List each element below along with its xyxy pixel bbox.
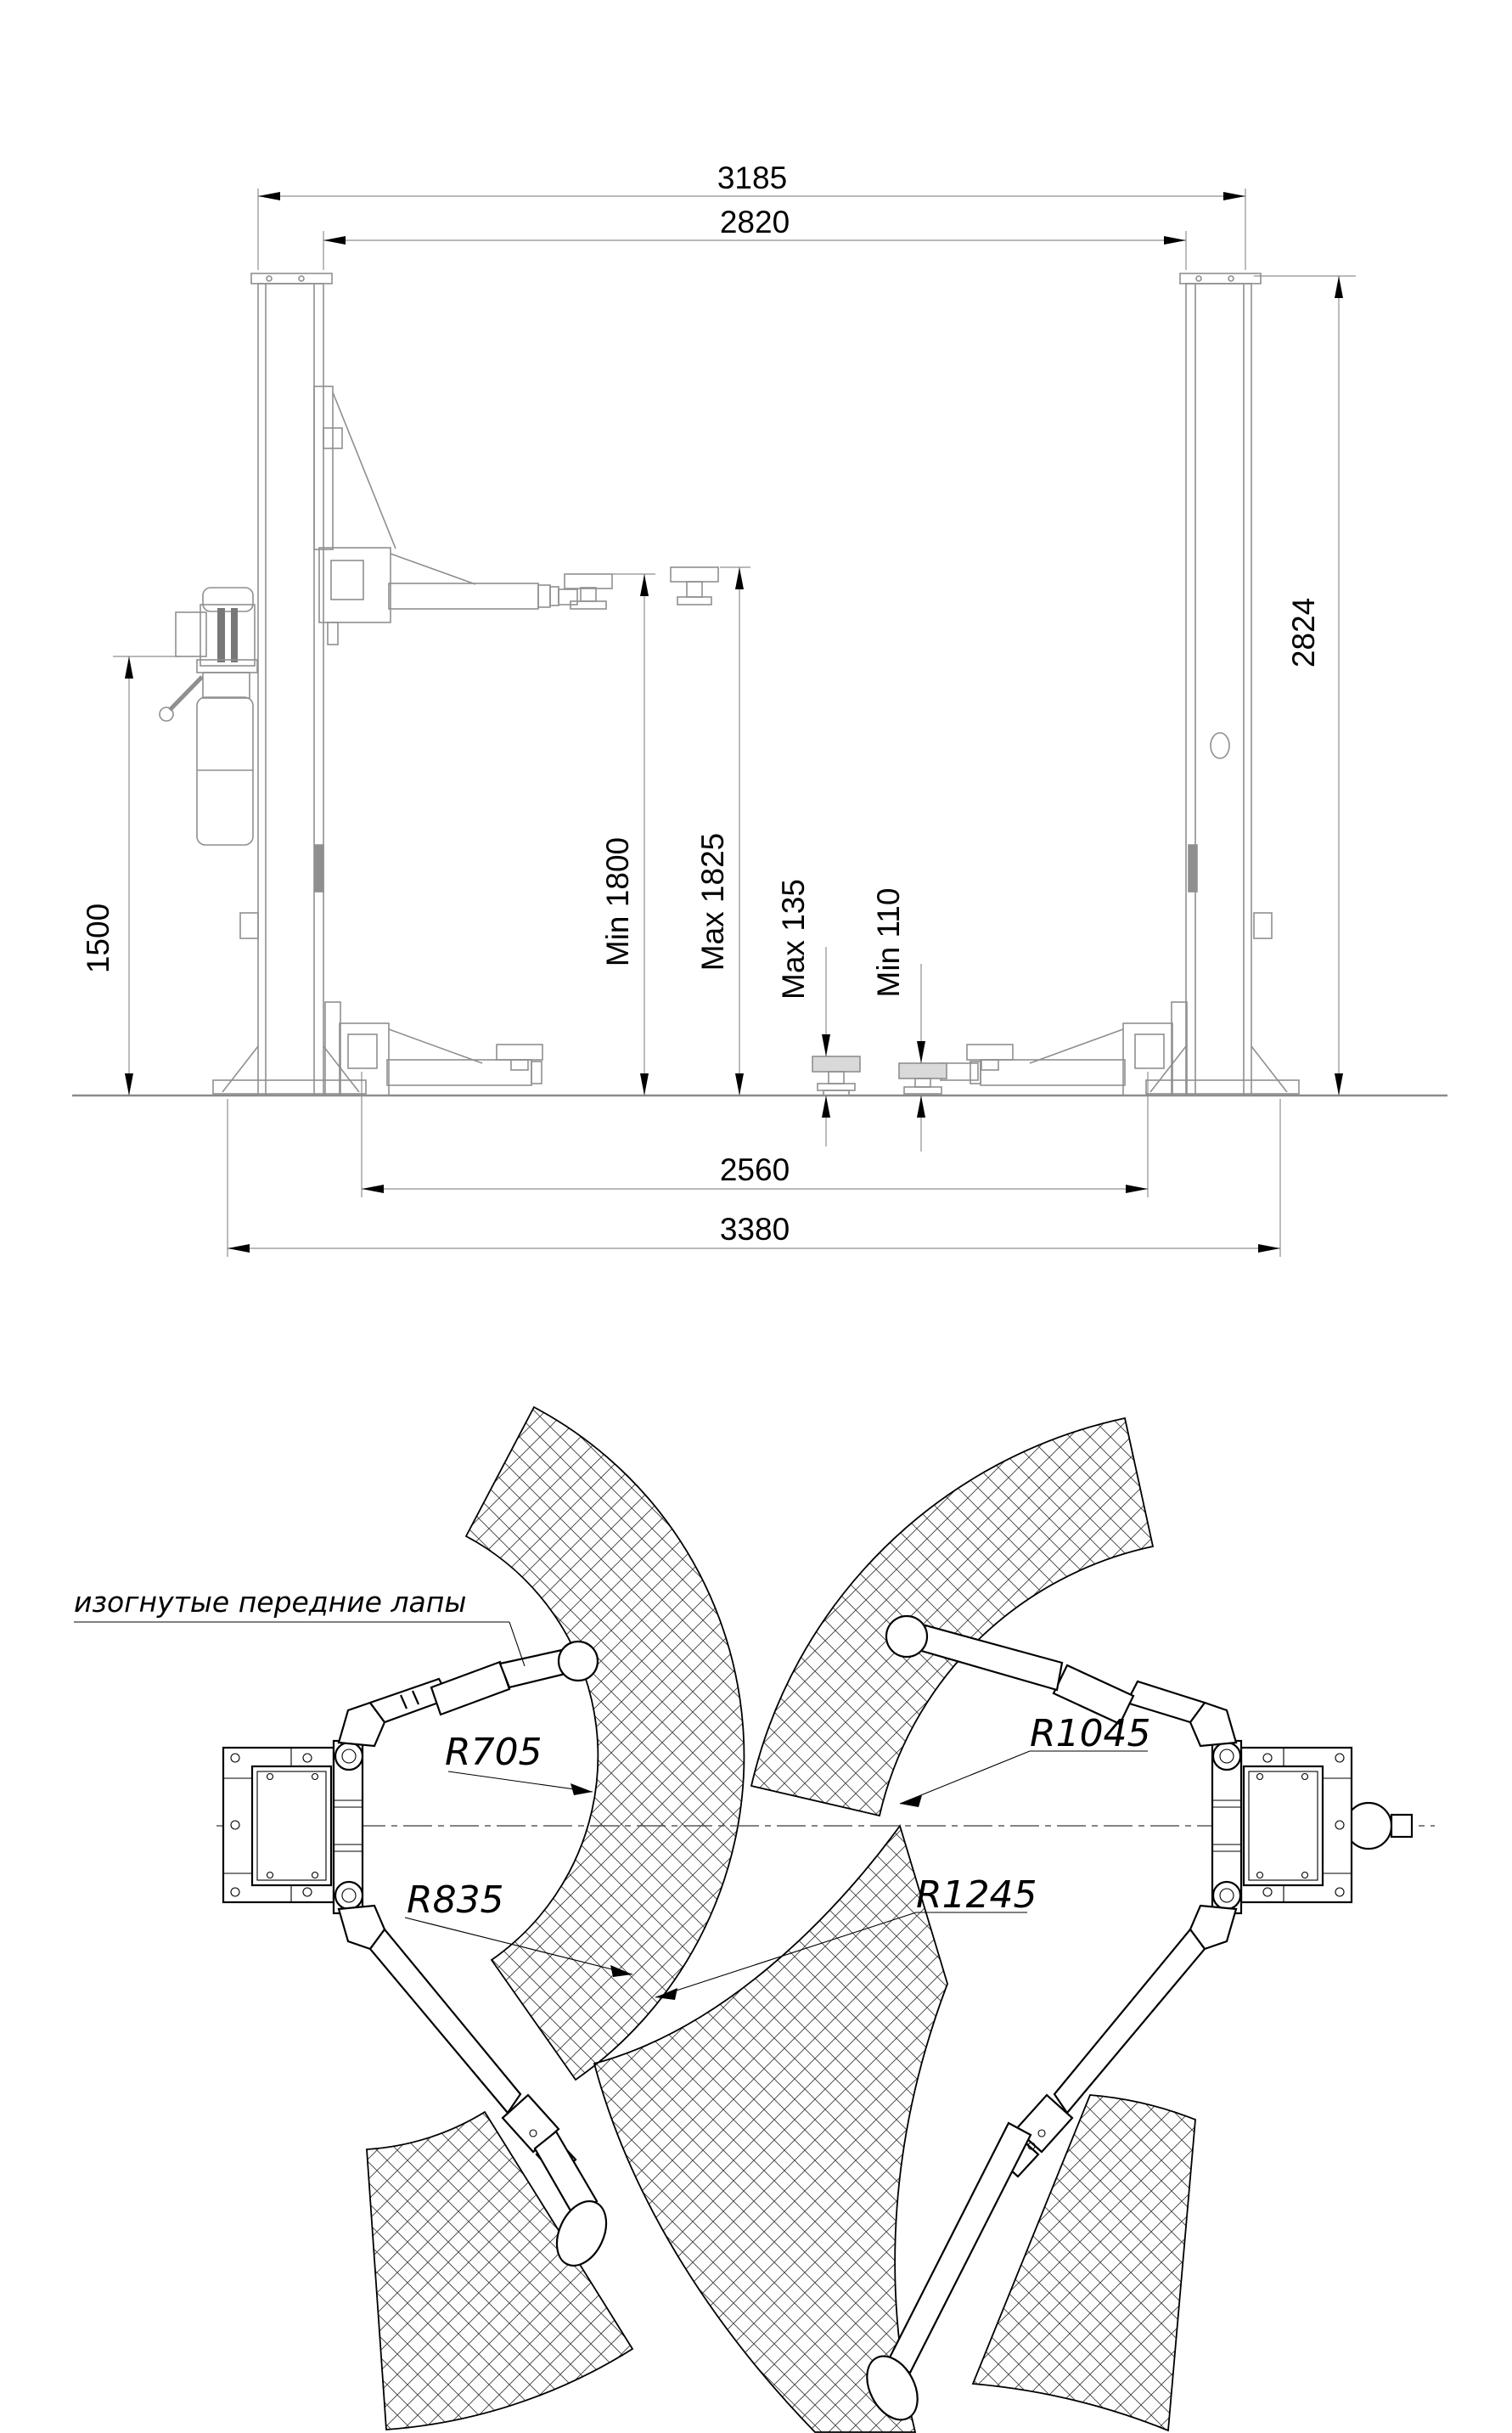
radius-rear-arm-min: R1045 [1030, 1712, 1151, 1755]
right-base-plate [1212, 1741, 1412, 1913]
dim-lift-height-min: Min 1800 [600, 837, 635, 966]
dim-column-height: 2824 [1286, 598, 1321, 667]
dim-inner-width-bottom: 2560 [720, 1152, 790, 1187]
radius-front-arm-max: R835 [407, 1878, 504, 1922]
dimension-lines [113, 189, 1356, 1257]
two-post-lift-technical-drawing: 3185 2820 2824 1500 Min 1800 Max 1825 Ma… [0, 0, 1512, 2433]
dim-power-unit-height: 1500 [81, 904, 115, 973]
pad-min110 [899, 1063, 947, 1094]
right-post [1146, 273, 1299, 1095]
radius-rear-arm-max: R1245 [916, 1873, 1037, 1917]
left-post [213, 273, 366, 1095]
front-view: 3185 2820 2824 1500 Min 1800 Max 1825 Ma… [72, 161, 1447, 1257]
dim-pad-height-min: Min 110 [871, 888, 906, 998]
note-front-arms: изогнутые передние лапы [74, 1585, 466, 1619]
dim-overall-width-bottom: 3380 [720, 1212, 790, 1247]
radius-front-arm-min: R705 [445, 1731, 542, 1774]
pad-max135 [812, 1056, 860, 1095]
raised-arm-assembly [314, 386, 718, 645]
lowered-arm-left [325, 1002, 542, 1095]
dim-pad-height-max: Max 135 [776, 879, 811, 1000]
drawing-page: 3185 2820 2824 1500 Min 1800 Max 1825 Ma… [0, 0, 1512, 2433]
left-base-plate [223, 1741, 363, 1913]
swing-zone-front-right [751, 1418, 1153, 1816]
dim-lift-height-max: Max 1825 [695, 833, 730, 972]
dim-overall-width-top: 3185 [717, 161, 787, 195]
plan-view: изогнутые передние лапы R705 R835 R1045 … [74, 1407, 1435, 2432]
lowered-arm-right [941, 1002, 1187, 1095]
power-unit [160, 588, 257, 845]
swing-zone-rear-left [367, 2112, 632, 2430]
dim-inner-width-top: 2820 [720, 205, 790, 239]
